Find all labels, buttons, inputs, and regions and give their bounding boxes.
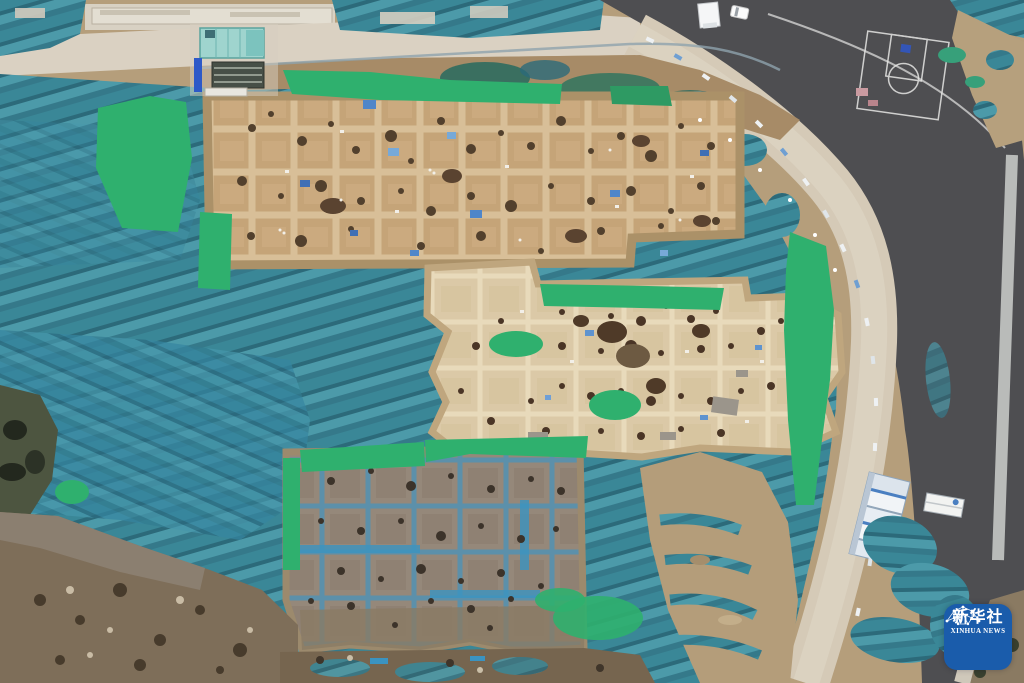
excavation-site-scene [0,0,1024,683]
hoop-base [900,44,911,53]
aerial-photo: 新华社 XINHUA NEWS [0,0,1024,683]
bottom-soil-band [280,648,655,683]
blue-banner [194,58,202,92]
xinhua-watermark: 新华社 XINHUA NEWS [944,604,1012,670]
south-excavation-grid [286,448,585,652]
box-truck [698,2,721,29]
north-excavation-grid [207,96,740,265]
site-office [190,24,278,96]
xinhua-logo-subtitle: XINHUA NEWS [951,627,1006,635]
